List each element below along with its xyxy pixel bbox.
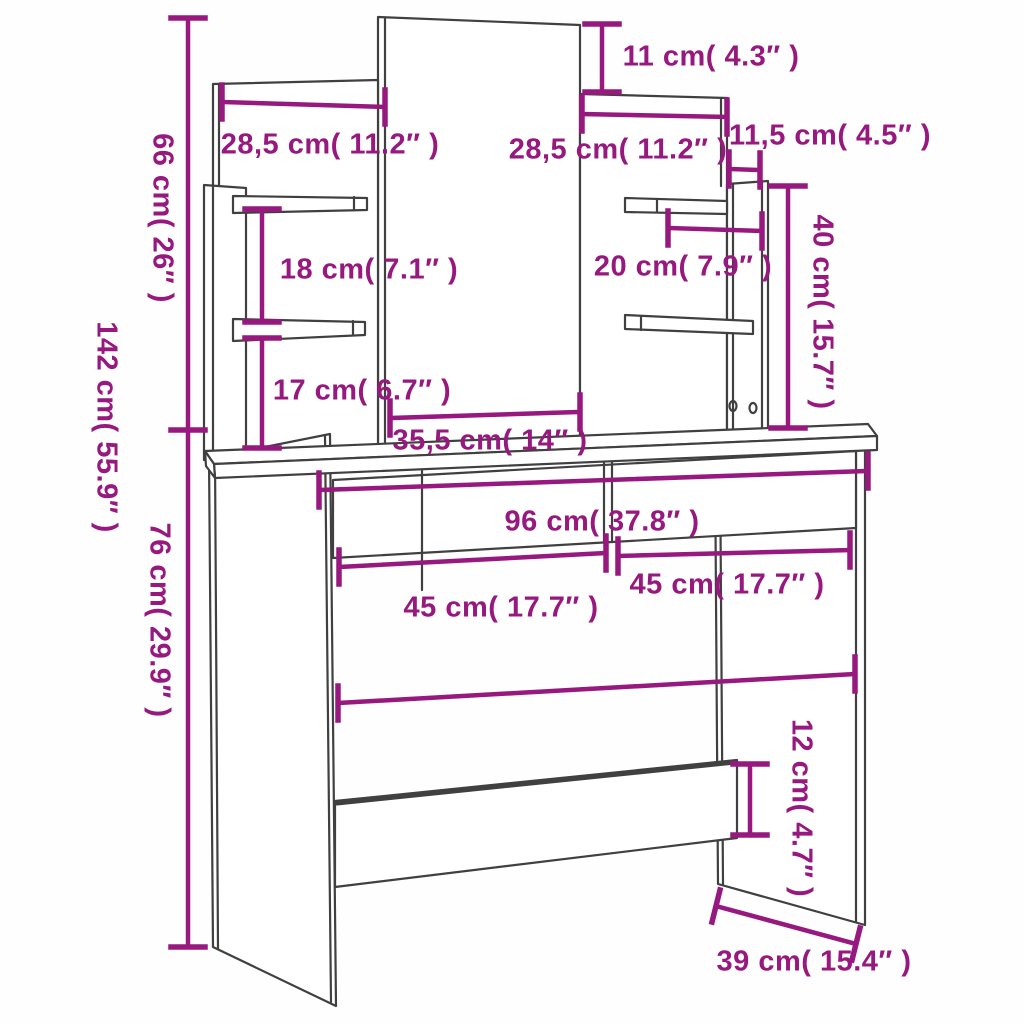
dim-label-side-board-depth: 11,5 cm( 4.5″ ) [729,122,931,151]
dim-label-left-panel-width: 28,5 cm( 11.2″ ) [221,131,440,160]
dimension-diagram: 66 cm( 26″ ) 142 cm( 55.9″ ) 76 cm( 29.9… [0,0,1024,1024]
bottom-rail [335,760,737,887]
dim-label-left-drawer-width: 45 cm( 17.7″ ) [404,594,599,623]
dim-label-desk-width: 96 cm( 37.8″ ) [505,508,700,537]
dim-label-left-shelf-gap: 18 cm( 7.1″ ) [280,256,458,285]
right-shelf-top [625,198,727,214]
dim-label-mirror-offset: 11 cm( 4.3″ ) [623,43,800,72]
desk-left-side-panel [209,434,336,1006]
dim-line-right-column-height [771,186,805,428]
dim-label-total-height: 142 cm( 55.9″ ) [92,321,121,533]
dim-label-right-column-height: 40 cm( 15.7″ ) [808,215,837,410]
dim-label-right-shelf-width: 20 cm( 7.9″ ) [594,253,772,282]
dim-label-right-panel-width: 28,5 cm( 11.2″ ) [509,136,728,165]
dim-line-mirror-offset [585,24,619,92]
dim-label-left-lower-gap: 17 cm( 6.7″ ) [273,377,451,406]
dim-label-upper-height: 66 cm( 26″ ) [148,133,177,303]
dim-label-rail-height: 12 cm( 4.7″ ) [787,719,816,897]
dim-label-right-drawer-width: 45 cm( 17.7″ ) [630,571,825,600]
dim-label-desk-height: 76 cm( 29.9″ ) [145,523,174,718]
dim-label-desk-depth: 39 cm( 15.4″ ) [717,948,912,977]
dim-label-mirror-width: 35,5 cm( 14″ ) [393,427,588,456]
